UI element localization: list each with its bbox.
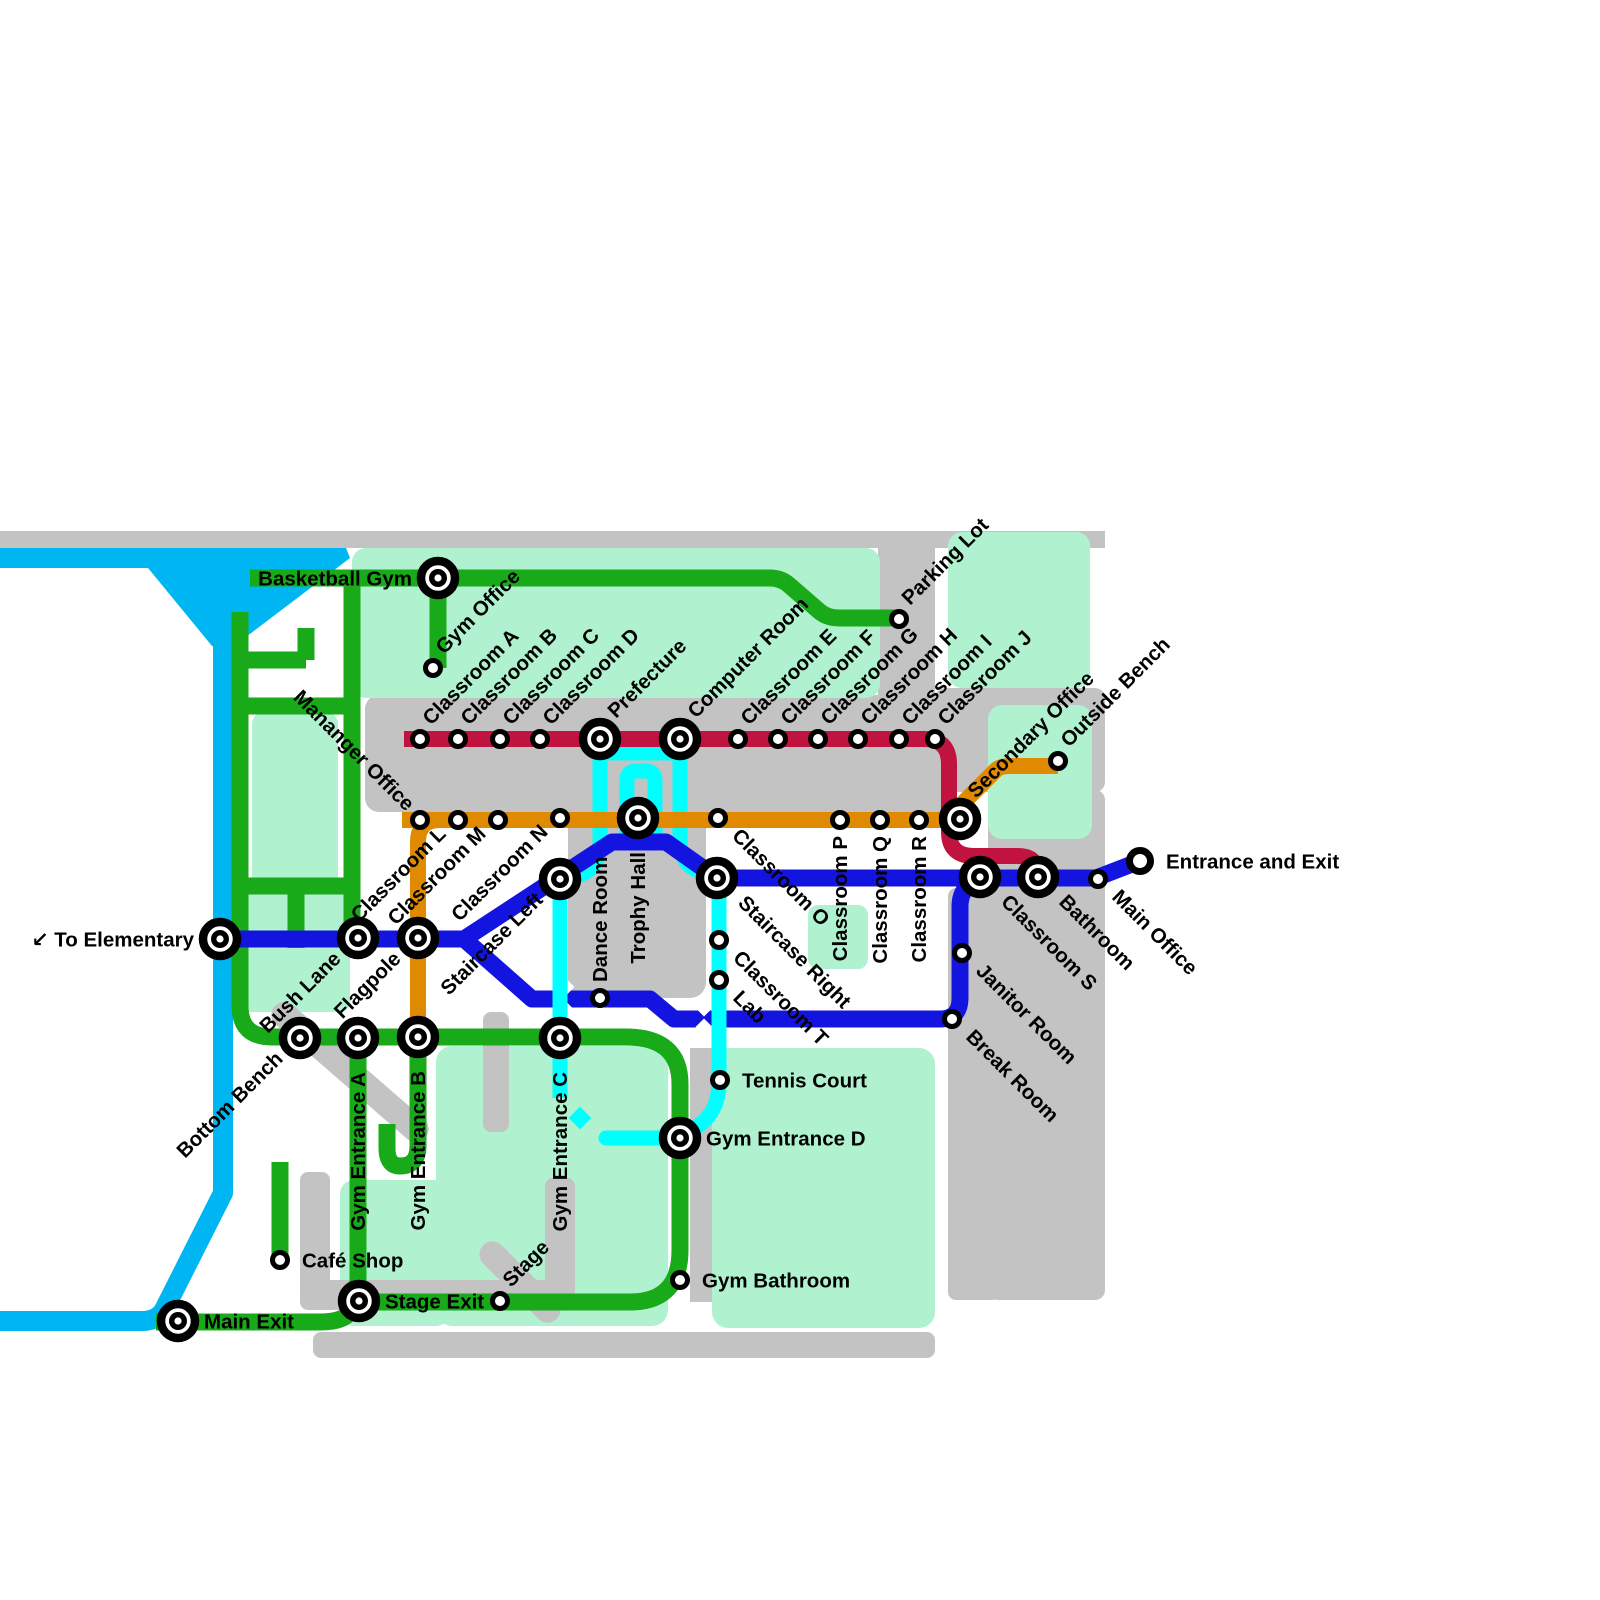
station-cafe-shop[interactable]: Café Shop: [273, 1250, 404, 1273]
station-label-gym-bathroom: Gym Bathroom: [702, 1270, 850, 1293]
building-bottom-band: [313, 1332, 935, 1358]
station-classroom-p[interactable]: Classroom P: [829, 813, 852, 962]
station-trophy-hall[interactable]: Trophy Hall: [621, 801, 655, 964]
building-road-gym-mid: [690, 1048, 712, 1302]
station-label-main-exit: Main Exit: [204, 1311, 294, 1334]
station-gym-entrance-b[interactable]: Gym Entrance B: [401, 1020, 435, 1231]
station-classroom-r[interactable]: Classroom R: [908, 813, 931, 963]
station-label-trophy-hall: Trophy Hall: [627, 852, 650, 964]
station-gym-entrance-c[interactable]: Gym Entrance C: [543, 1021, 577, 1232]
station-label-dance-room: Dance Room: [589, 857, 612, 982]
station-label-cafe-shop: Café Shop: [302, 1250, 403, 1273]
station-label-tennis-court: Tennis Court: [742, 1070, 867, 1093]
station-label-entrance-and-exit: Entrance and Exit: [1166, 851, 1339, 874]
school-transit-map: Basketball GymGym OfficeParking LotClass…: [0, 0, 1600, 1600]
station-classroom-q[interactable]: Classroom Q: [869, 813, 892, 964]
station-gym-entrance-a[interactable]: Gym Entrance A: [341, 1021, 375, 1231]
station-main-exit[interactable]: Main Exit: [161, 1304, 294, 1338]
elementary-river: [0, 640, 223, 1321]
map-canvas: Basketball GymGym OfficeParking LotClass…: [0, 0, 1600, 1600]
station-entrance-and-exit[interactable]: Entrance and Exit: [1130, 851, 1340, 874]
station-label-gym-entrance-c: Gym Entrance C: [549, 1072, 572, 1232]
station-label-classroom-p: Classroom P: [829, 836, 852, 961]
station-label-gym-entrance-a: Gym Entrance A: [347, 1072, 370, 1231]
station-label-gym-entrance-b: Gym Entrance B: [407, 1071, 430, 1231]
station-label-classroom-r: Classroom R: [908, 836, 931, 963]
station-label-classroom-q: Classroom Q: [869, 836, 892, 964]
station-label-to-elementary: ↙ To Elementary: [31, 929, 194, 952]
station-bottom-bench[interactable]: Bottom Bench: [172, 1021, 317, 1163]
station-label-stage-exit: Stage Exit: [385, 1291, 484, 1314]
station-to-elementary[interactable]: ↙ To Elementary: [31, 922, 237, 956]
station-label-basketball-gym: Basketball Gym: [258, 568, 412, 591]
building-top-band: [0, 531, 1105, 548]
building-mint-loop-inner: [252, 712, 338, 890]
station-label-gym-entrance-d: Gym Entrance D: [706, 1128, 866, 1151]
